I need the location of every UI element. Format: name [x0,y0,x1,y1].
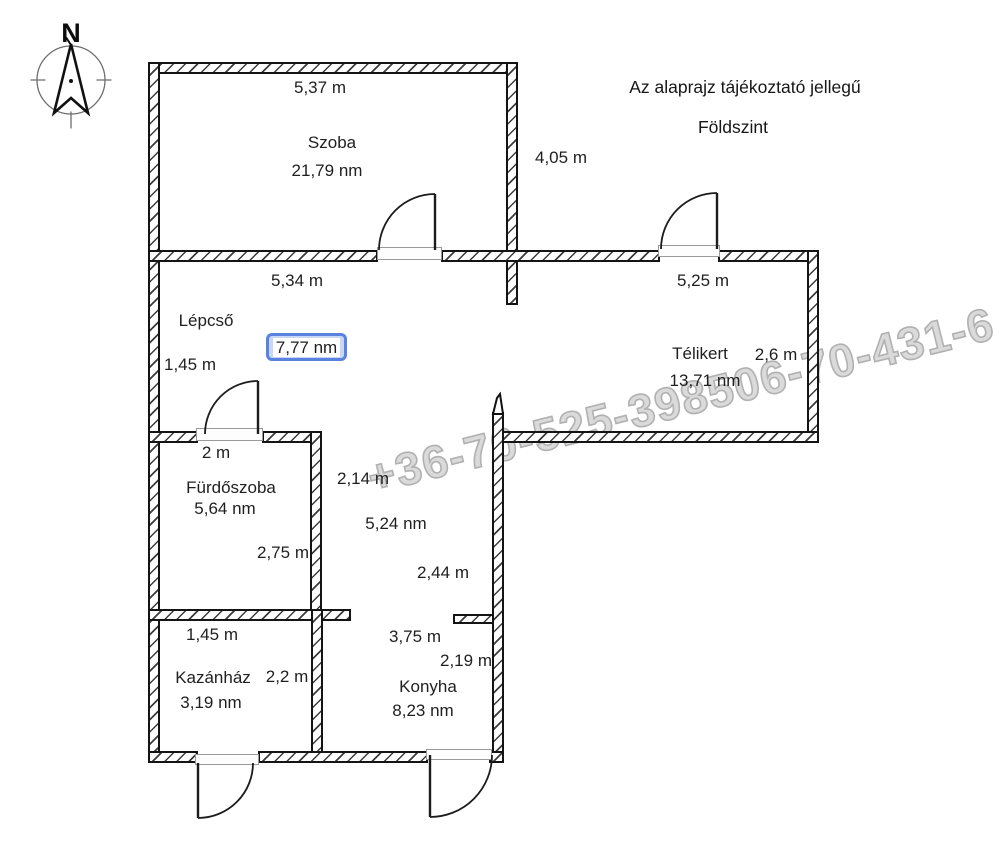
floorplan-canvas: +36-70-525-398506-70-431-6 N [0,0,1000,852]
furdoszoba-width-dim: 2 m [202,443,230,463]
konyha-door [430,755,492,817]
wall-middle-a [148,250,378,262]
threshold-telikert-door [658,245,720,257]
telikert-door [661,193,717,249]
compass-north-label: N [61,18,81,48]
north-arrow-icon [54,44,88,113]
disclaimer-text: Az alaprajz tájékoztató jellegű [629,77,861,97]
wall-left-outer [148,62,160,763]
hall-area: 5,24 nm [365,514,426,534]
kazanhaz-width-dim: 1,45 m [186,625,238,645]
kazanhaz-door [198,763,253,818]
szoba-room-name: Szoba [308,133,356,153]
wall-furdoszoba-right [310,431,322,621]
szoba-height-dim: 4,05 m [535,148,587,168]
lepcso-height-dim: 1,45 m [164,355,216,375]
telikert-room-name: Télikert [672,344,728,364]
szoba-door [379,194,435,250]
kazanhaz-depth-dim: 2,2 m [266,667,309,687]
wall-bottom-b [258,751,428,763]
telikert-width-dim: 5,25 m [677,271,729,291]
lepcso-width-dim: 5,34 m [271,271,323,291]
furdoszoba-height-dim: 2,75 m [257,543,309,563]
szoba-area: 21,79 nm [292,161,363,181]
furdoszoba-room-name: Fürdőszoba [186,478,276,498]
wall-break-tip [493,394,503,414]
konyha-area: 8,23 nm [392,701,453,721]
lepcso-door [205,381,258,434]
selected-area-highlight[interactable]: 7,77 nm [266,333,347,361]
telikert-depth-dim: 2,6 m [755,345,798,365]
threshold-kazanhaz-door [195,754,259,765]
wall-lepcso-bottom-a [148,431,198,443]
wall-bottom-a [148,751,198,763]
konyha-depth-dim: 2,19 m [440,651,492,671]
hall-dim-a: 2,14 m [337,469,389,489]
hall-dim-b: 2,44 m [417,563,469,583]
kazanhaz-area: 3,19 nm [180,693,241,713]
konyha-width-dim: 3,75 m [389,627,441,647]
wall-telikert-right [807,250,819,443]
telikert-area: 13,71 nm [670,371,741,391]
wall-szoba-right [506,62,518,305]
phone-watermark: +36-70-525-398506-70-431-6 [362,296,1000,504]
lepcso-area: 7,77 nm [273,338,340,357]
wall-kazanhaz-konyha-divider [311,609,323,763]
wall-middle-c [718,250,819,262]
threshold-szoba-door [377,247,442,260]
kazanhaz-room-name: Kazánház [175,668,251,688]
floor-label: Földszint [698,117,768,137]
threshold-konyha-door [426,749,492,760]
konyha-room-name: Konyha [399,677,457,697]
threshold-lepcso-door [196,428,263,441]
wall-middle-b [441,250,660,262]
szoba-width-dim: 5,37 m [294,78,346,98]
furdoszoba-area: 5,64 nm [194,499,255,519]
wall-szoba-top [148,62,518,74]
wall-telikert-bottom [497,431,819,443]
wall-konyha-top-stub [453,614,494,624]
compass-rose: N [31,18,111,128]
wall-center-vertical [492,412,504,763]
lepcso-room-name: Lépcső [179,311,234,331]
